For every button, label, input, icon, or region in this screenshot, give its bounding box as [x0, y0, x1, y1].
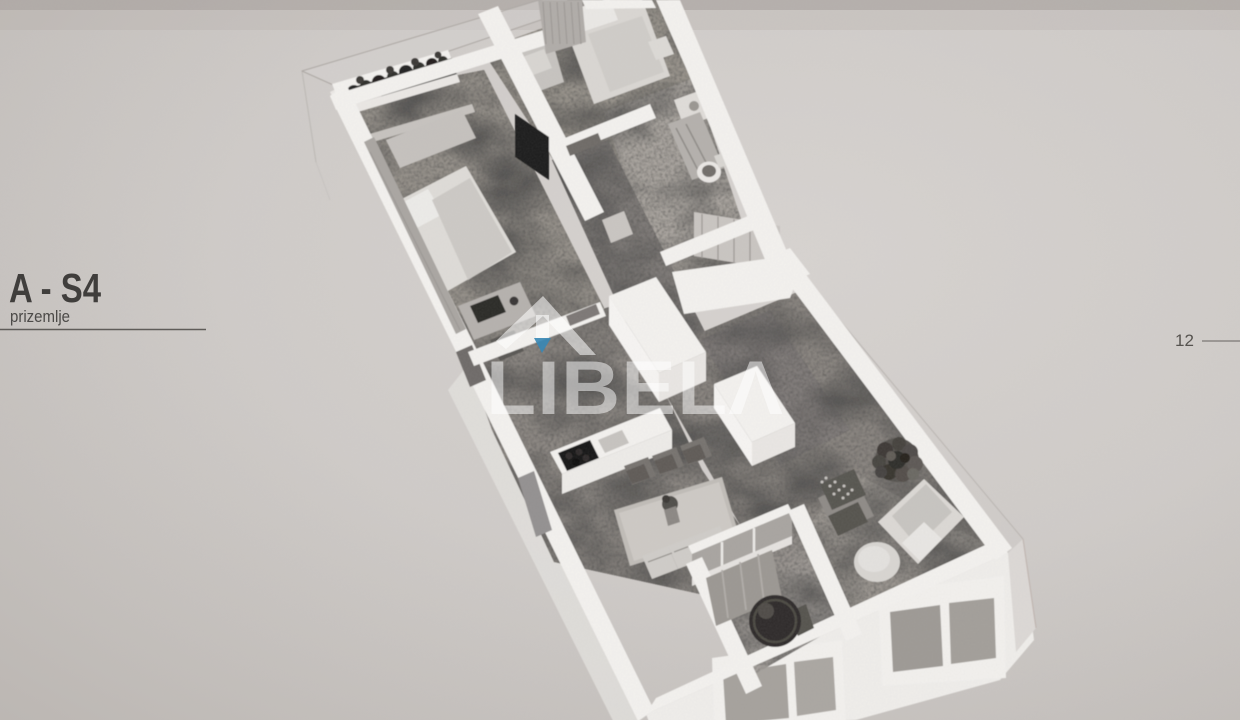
- svg-text:A - S4: A - S4: [9, 265, 101, 311]
- svg-text:LIBELΛ: LIBELΛ: [486, 346, 784, 431]
- svg-text:12: 12: [1175, 331, 1194, 350]
- svg-text:prizemlje: prizemlje: [10, 307, 70, 326]
